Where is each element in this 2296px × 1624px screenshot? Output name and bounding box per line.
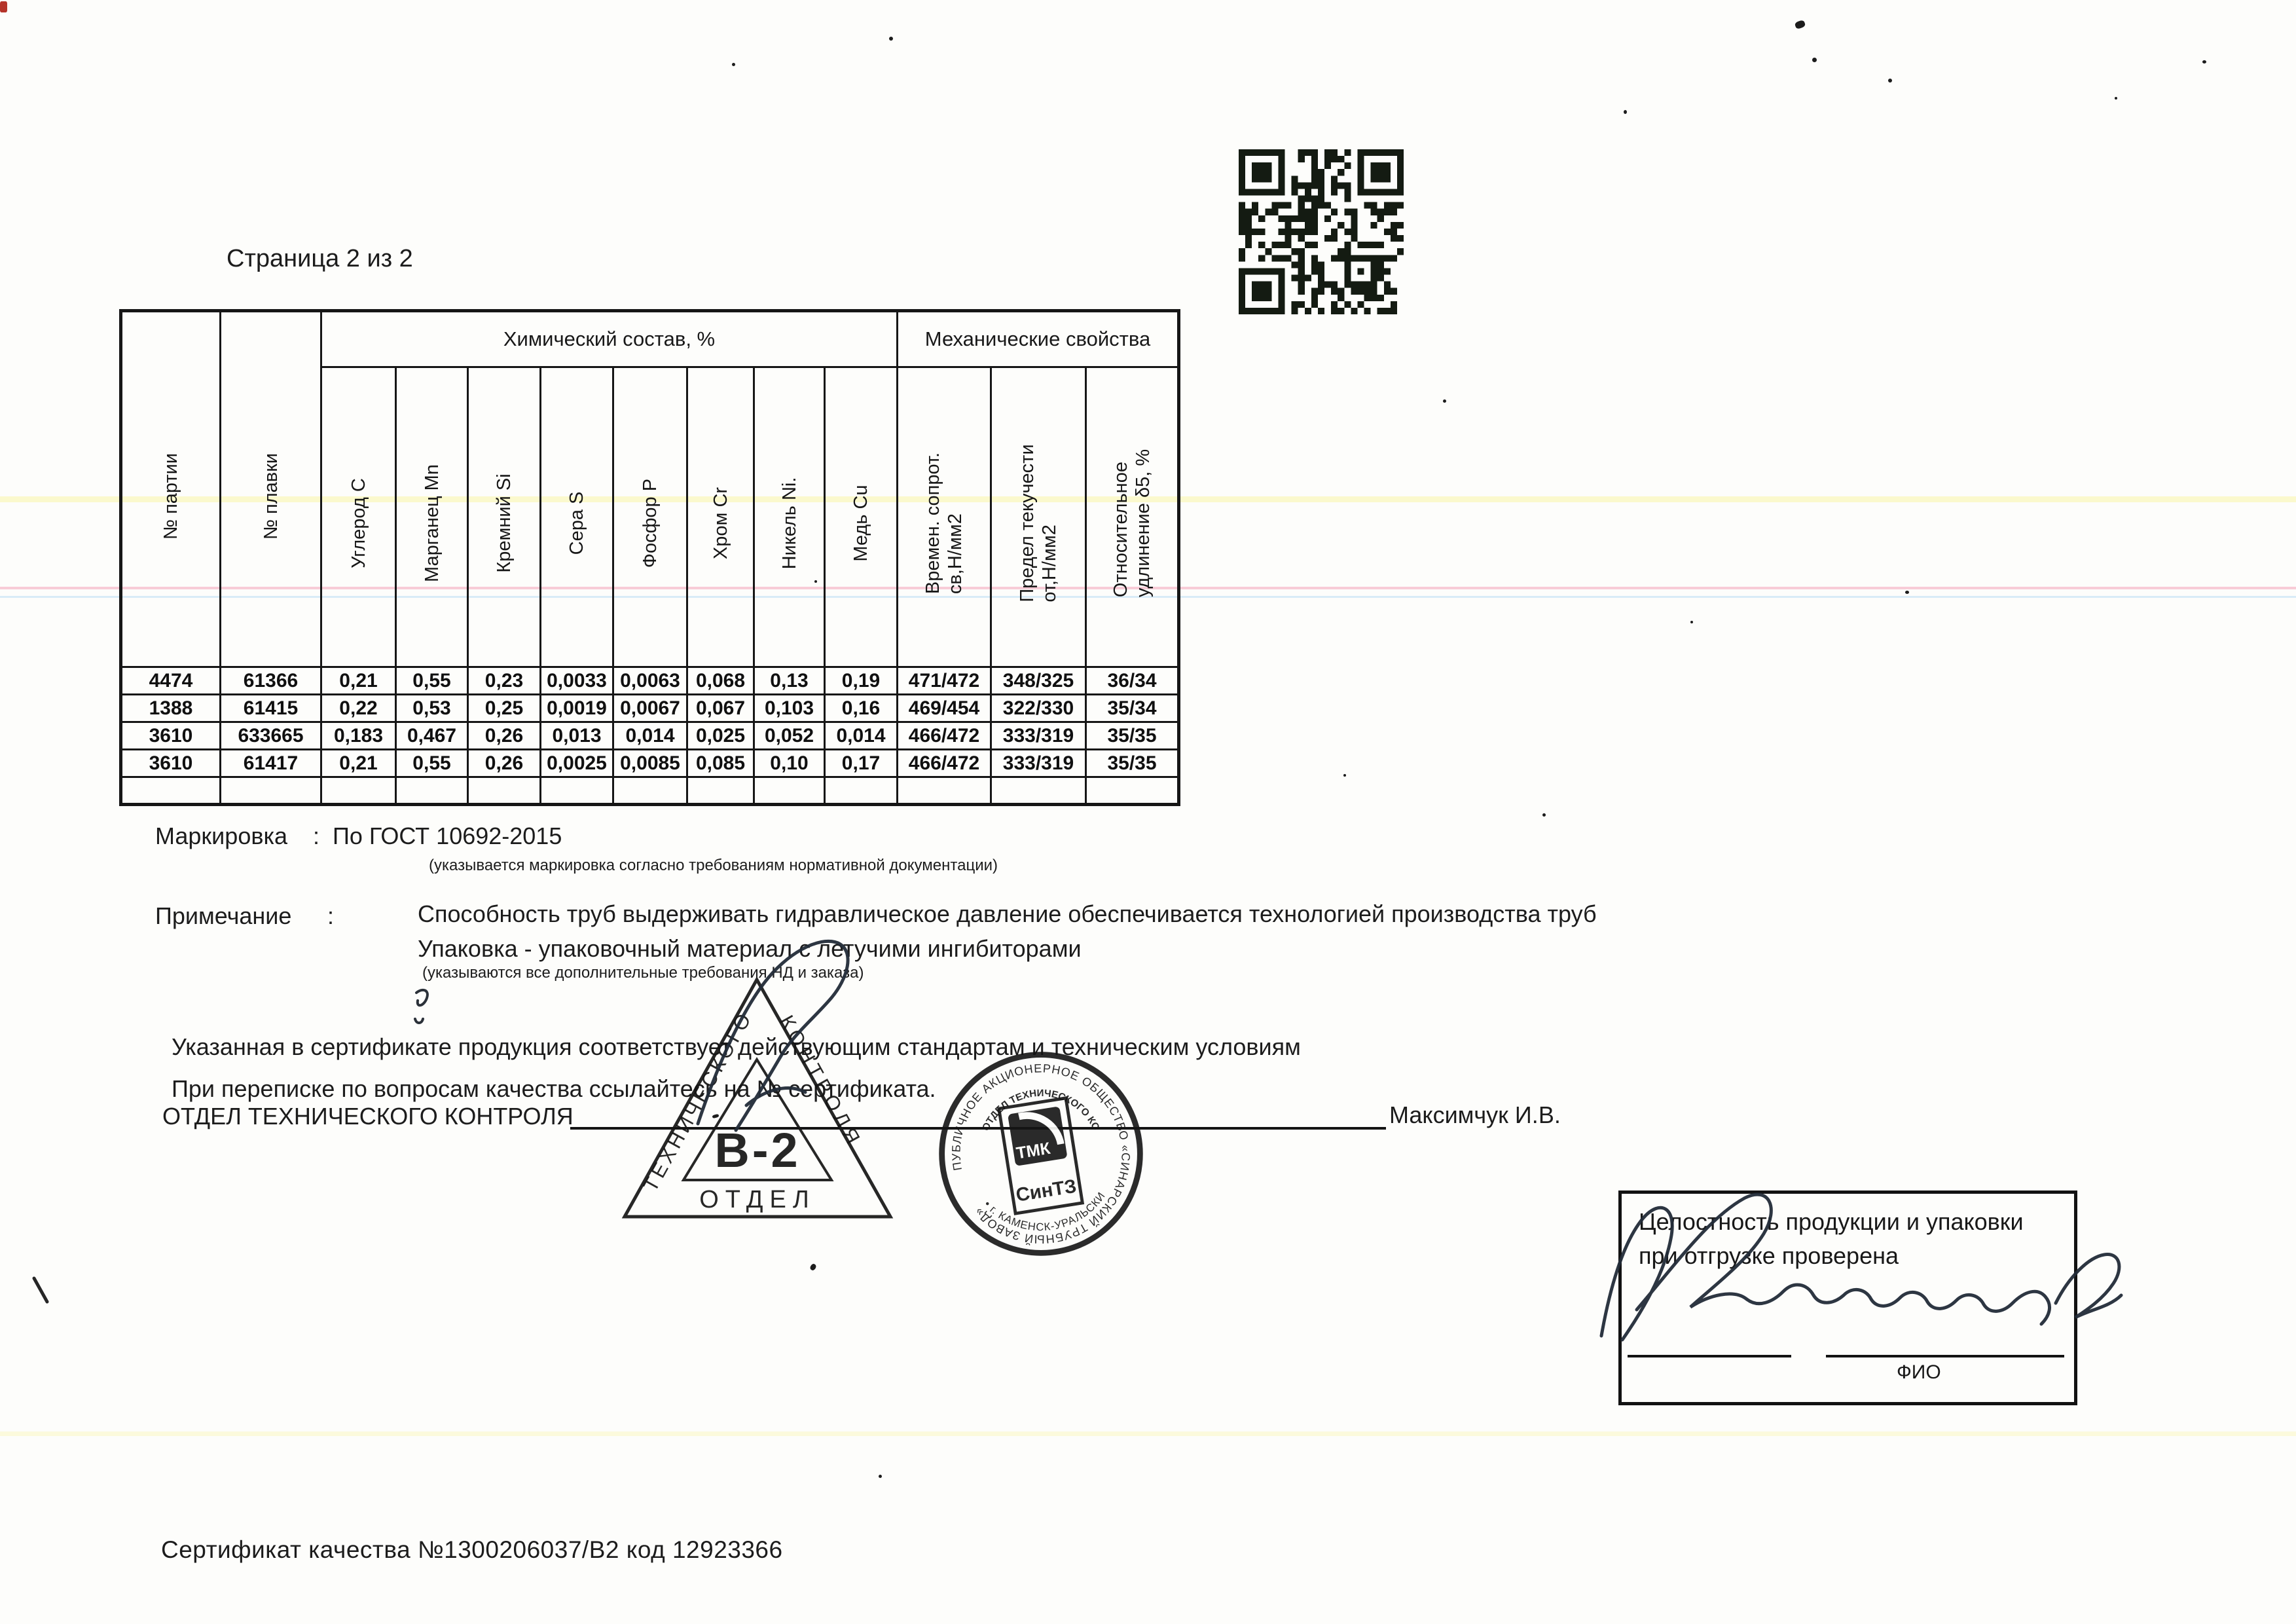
table-cell: 0,21: [321, 667, 396, 695]
column-header-carbon: Углерод С: [321, 367, 396, 667]
scan-speck: [814, 580, 817, 583]
integrity-line2: при отгрузке проверена: [1639, 1242, 1899, 1270]
column-header-copper: Медь Cu: [825, 367, 898, 667]
table-cell: 0,25: [468, 695, 541, 722]
table-cell: 0,052: [754, 722, 825, 750]
table-cell: 0,0085: [613, 750, 687, 777]
column-header-manganese: Марганец Mn: [396, 367, 468, 667]
table-cell: 0,014: [613, 722, 687, 750]
table-cell: 0,26: [468, 750, 541, 777]
table-cell: 35/34: [1086, 695, 1179, 722]
table-cell: 0,53: [396, 695, 468, 722]
fio-underline: [1826, 1355, 2064, 1357]
scan-speck: [1343, 774, 1346, 777]
table-cell: 348/325: [991, 667, 1086, 695]
scan-speck: [0, 1, 7, 12]
marking-label: Маркировка: [155, 822, 287, 850]
remark-colon: :: [327, 902, 334, 930]
table-cell: 1388: [121, 695, 221, 722]
table-cell: 0,0019: [541, 695, 613, 722]
table-row: 1388614150,220,530,250,00190,00670,0670,…: [121, 695, 1179, 722]
scan-speck: [879, 1475, 882, 1478]
scan-speck: [2115, 97, 2117, 100]
column-header-elongation: Относительное удлинение δ5, %: [1086, 367, 1179, 667]
triangle-stamp-bottom: ОТДЕЛ: [699, 1186, 816, 1213]
scan-speck: [889, 37, 893, 41]
table-cell: [468, 777, 541, 805]
integrity-line1: Целостность продукции и упаковки: [1639, 1208, 2024, 1236]
table-cell: 322/330: [991, 695, 1086, 722]
table-cell: 469/454: [898, 695, 991, 722]
table-cell: 333/319: [991, 722, 1086, 750]
scan-speck: [1624, 110, 1627, 114]
table-cell: 0,103: [754, 695, 825, 722]
table-cell: 35/35: [1086, 722, 1179, 750]
table-cell: 0,55: [396, 750, 468, 777]
table-cell: 36/34: [1086, 667, 1179, 695]
marking-note: (указывается маркировка согласно требова…: [429, 857, 998, 875]
table-cell: 0,085: [687, 750, 754, 777]
column-header-chromium: Хром Cr: [687, 367, 754, 667]
table-cell: 0,0063: [613, 667, 687, 695]
page-title: Страница 2 из 2: [227, 245, 413, 273]
column-header-heat: № плавки: [221, 311, 321, 667]
scan-speck: [1812, 58, 1817, 62]
table-cell: [687, 777, 754, 805]
table-cell: 0,55: [396, 667, 468, 695]
table-cell: 0,16: [825, 695, 898, 722]
table-cell: 0,22: [321, 695, 396, 722]
chemical-mechanical-table: № партии № плавки Химический состав, % М…: [119, 309, 1180, 806]
scan-speck: [1690, 621, 1693, 623]
table-cell: 61366: [221, 667, 321, 695]
table-cell: 0,014: [825, 722, 898, 750]
table-cell: 471/472: [898, 667, 991, 695]
table-cell: [754, 777, 825, 805]
table-row: 3610614170,210,550,260,00250,00850,0850,…: [121, 750, 1179, 777]
column-header-nickel: Никель Ni.: [754, 367, 825, 667]
qr-code: [1239, 149, 1404, 314]
triangle-stamp-center: В-2: [714, 1123, 800, 1177]
scanned-certificate-page: Страница 2 из 2 № партии № плавки Химиче…: [0, 0, 2296, 1624]
pen-mark: [415, 990, 428, 1023]
table-cell: [898, 777, 991, 805]
table-cell: 0,21: [321, 750, 396, 777]
table-cell: 0,013: [541, 722, 613, 750]
table-cell: 0,17: [825, 750, 898, 777]
scan-speck: [1888, 79, 1892, 83]
table-cell: 0,0067: [613, 695, 687, 722]
table-cell: 61417: [221, 750, 321, 777]
scan-speck: [1795, 20, 1806, 29]
scan-speck: [1443, 399, 1446, 403]
table-cell: 0,067: [687, 695, 754, 722]
table-cell: 0,19: [825, 667, 898, 695]
column-header-silicon: Кремний Si: [468, 367, 541, 667]
group-header-mechanical: Механические свойства: [898, 311, 1179, 367]
table-cell: [613, 777, 687, 805]
triangle-stamp: В-2 ОТДЕЛ ТЕХНИЧЕСКОГО КОНТРОЛЯ: [621, 977, 896, 1222]
table-cell: 0,467: [396, 722, 468, 750]
scan-speck: [2202, 60, 2206, 64]
table-cell: [541, 777, 613, 805]
scan-speck: [732, 63, 735, 66]
scan-speck: [809, 1263, 817, 1272]
group-header-chemical: Химический состав, %: [321, 311, 898, 367]
table-cell: 0,0025: [541, 750, 613, 777]
qc-department-label: ОТДЕЛ ТЕХНИЧЕСКОГО КОНТРОЛЯ: [162, 1103, 574, 1130]
column-header-yield: Предел текучести от,Н/мм2: [991, 367, 1086, 667]
table-cell: 0,0033: [541, 667, 613, 695]
table-cell: 3610: [121, 722, 221, 750]
table-cell: [825, 777, 898, 805]
table-cell: 35/35: [1086, 750, 1179, 777]
remark-label: Примечание: [155, 902, 291, 930]
table-cell: [121, 777, 221, 805]
scan-speck: [1905, 591, 1909, 594]
certificate-footer: Сертификат качества №1300206037/В2 код 1…: [161, 1536, 783, 1564]
table-cell: [221, 777, 321, 805]
table-cell: 0,025: [687, 722, 754, 750]
table-cell: [991, 777, 1086, 805]
table-cell: 0,183: [321, 722, 396, 750]
table-cell: 333/319: [991, 750, 1086, 777]
table-cell: 0,26: [468, 722, 541, 750]
table-cell: 0,23: [468, 667, 541, 695]
corner-dash-mark: [34, 1278, 47, 1302]
marking-value: По ГОСТ 10692-2015: [333, 822, 562, 850]
remark-line2: Упаковка - упаковочный материал с летучи…: [418, 935, 1082, 963]
table-cell: [321, 777, 396, 805]
table-row: 4474613660,210,550,230,00330,00630,0680,…: [121, 667, 1179, 695]
table-cell: 61415: [221, 695, 321, 722]
table-row-empty: [121, 777, 1179, 805]
fio-label: ФИО: [1897, 1361, 1941, 1384]
fio-underline: [1628, 1355, 1791, 1357]
column-header-sulfur: Сера S: [541, 367, 613, 667]
table-cell: 0,13: [754, 667, 825, 695]
table-cell: [1086, 777, 1179, 805]
table-row: 36106336650,1830,4670,260,0130,0140,0250…: [121, 722, 1179, 750]
column-header-tensile: Времен. сопрот. св,Н/мм2: [898, 367, 991, 667]
integrity-box: Целостность продукции и упаковки при отг…: [1618, 1190, 2077, 1405]
table-cell: 466/472: [898, 722, 991, 750]
round-stamp: ПУБЛИЧНОЕ АКЦИОНЕРНОЕ ОБЩЕСТВО «СИНАРСКИ…: [932, 1045, 1150, 1263]
table-cell: 633665: [221, 722, 321, 750]
table-cell: 466/472: [898, 750, 991, 777]
table-cell: 0,068: [687, 667, 754, 695]
table-cell: [396, 777, 468, 805]
scan-band-yellow-2: [0, 1431, 2296, 1436]
signatory-name: Максимчук И.В.: [1389, 1101, 1561, 1129]
table-cell: 3610: [121, 750, 221, 777]
table-cell: 4474: [121, 667, 221, 695]
remark-line1: Способность труб выдерживать гидравличес…: [418, 900, 1597, 928]
column-header-phosphorus: Фосфор Р: [613, 367, 687, 667]
column-header-batch: № партии: [121, 311, 221, 667]
marking-colon: :: [313, 822, 319, 850]
table-cell: 0,10: [754, 750, 825, 777]
scan-speck: [1542, 813, 1546, 817]
sintz-logo-text: СинТЗ: [1014, 1175, 1078, 1206]
